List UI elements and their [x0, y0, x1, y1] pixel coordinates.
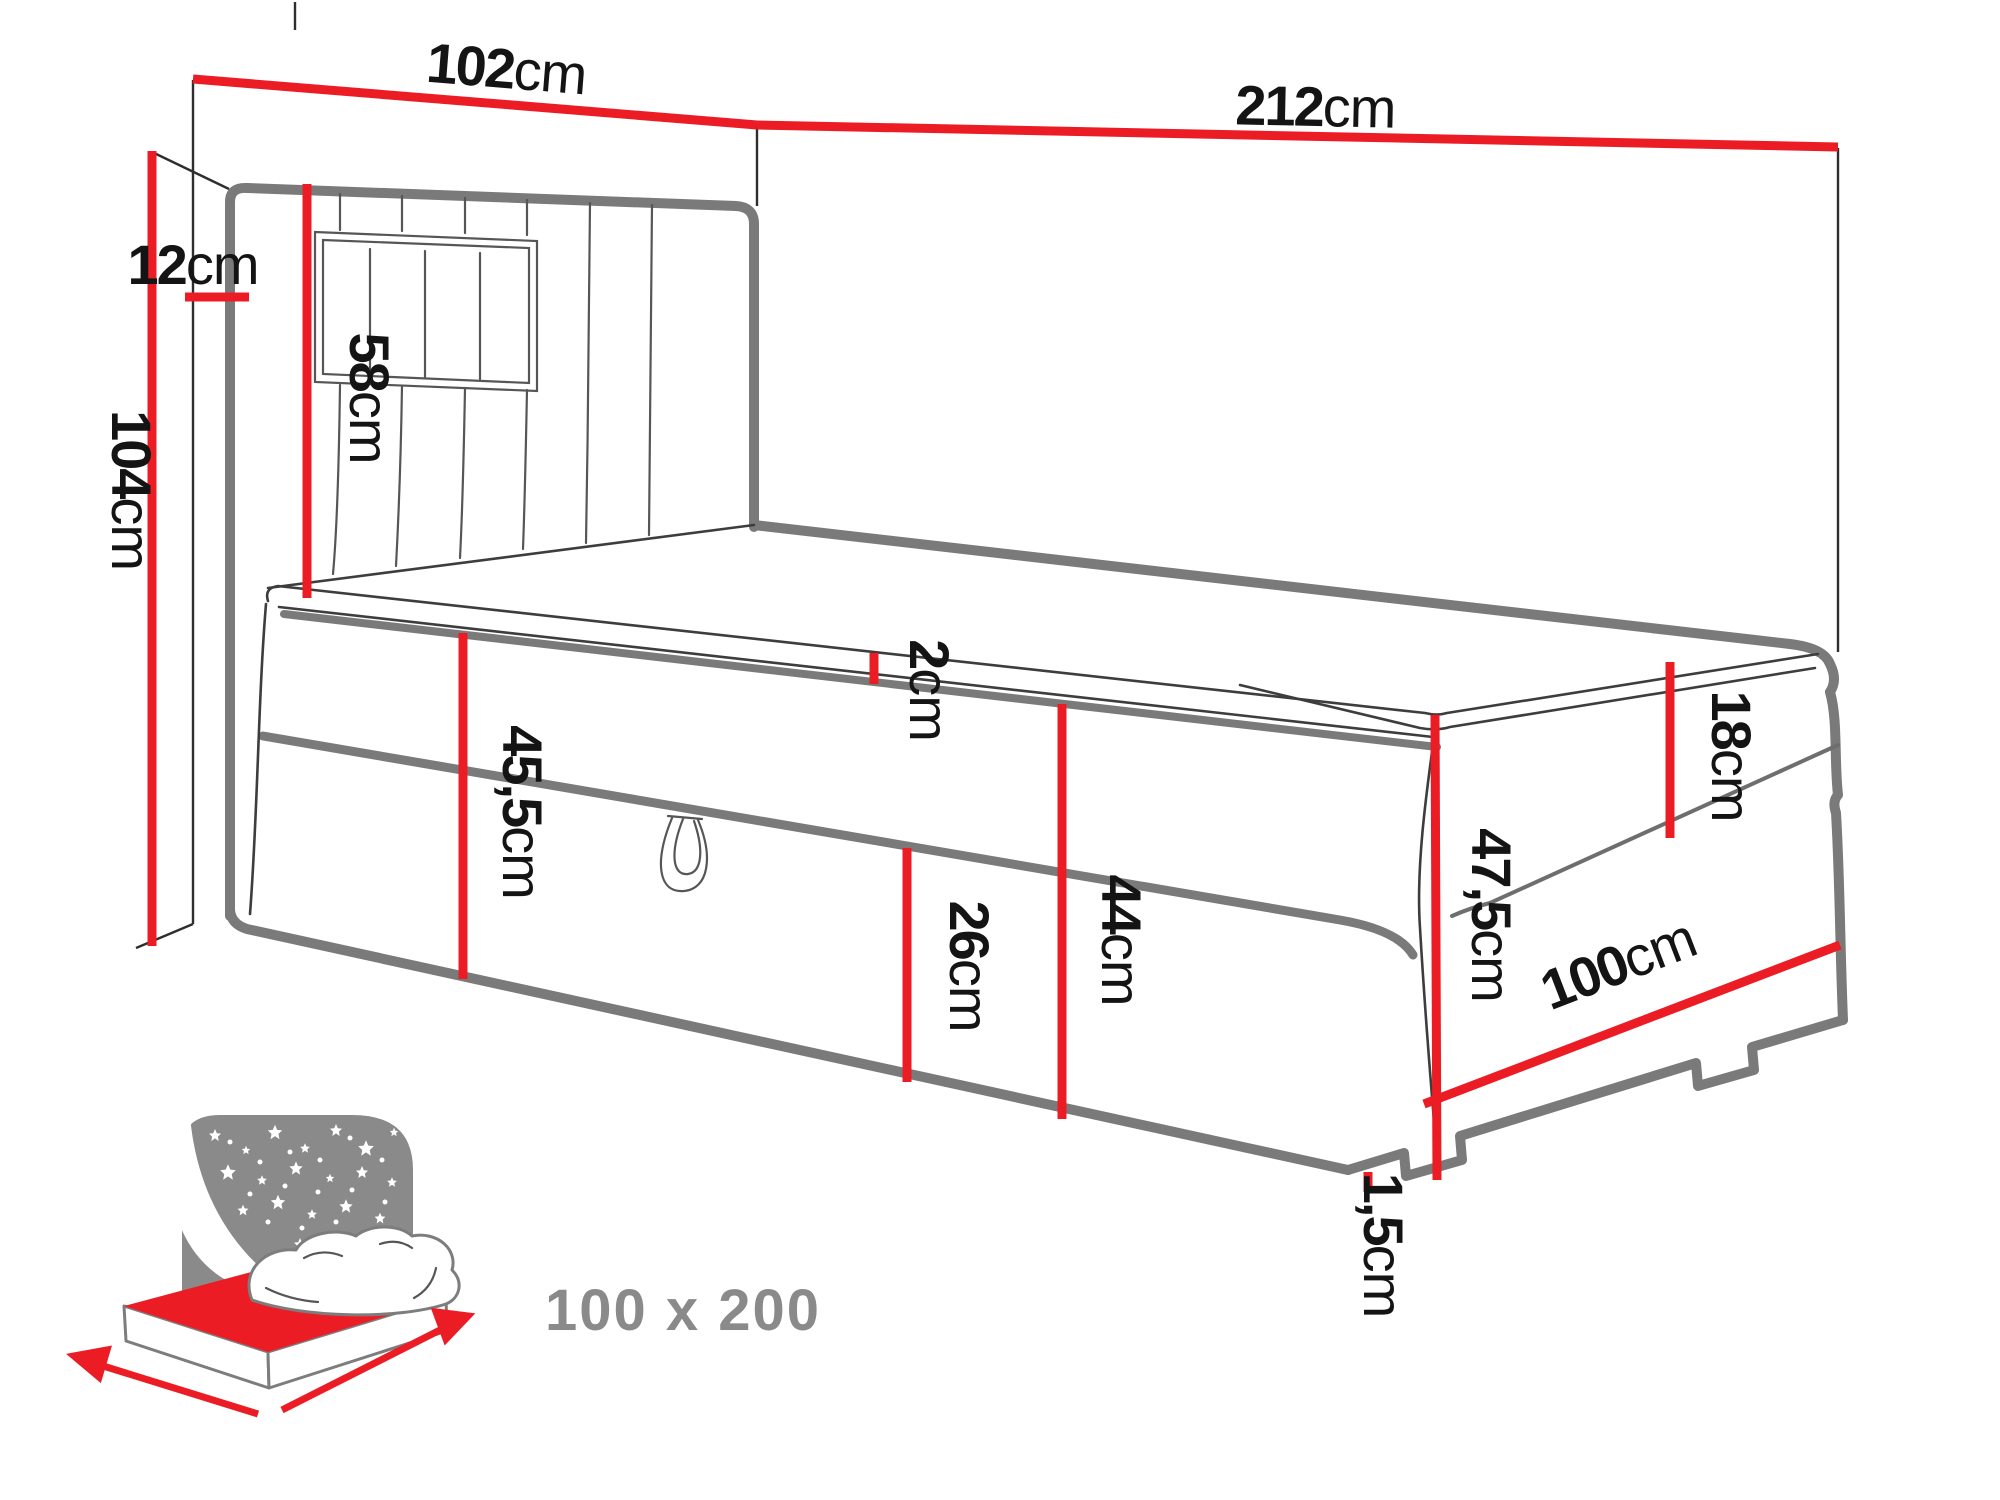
star-dot	[383, 1200, 388, 1205]
dimension-label-drawer-height: 26cm	[938, 901, 1001, 1032]
topper-bottom-line	[279, 607, 1433, 737]
headboard-tuft-seam	[586, 203, 590, 543]
headboard-tuft-seam	[649, 205, 652, 535]
star-dot	[348, 1136, 353, 1141]
wall-floor-line	[136, 924, 193, 948]
drawer-handle	[661, 816, 707, 891]
arrow-head-right-icon	[436, 1312, 468, 1339]
bed-size-icon	[74, 1115, 468, 1414]
dimension-label-headboard-above-mattress: 58cm	[338, 333, 401, 464]
dimension-line-47-5cm	[1435, 715, 1437, 1180]
side-head-curve	[250, 604, 266, 914]
dimension-label-total-length: 212cm	[1235, 73, 1396, 139]
headboard-tuft-seam	[460, 198, 465, 558]
star-dot	[380, 1158, 385, 1163]
box-divider-edge	[263, 736, 1413, 955]
dimension-label-topper: 2cm	[898, 639, 961, 741]
dimension-label-headboard-depth: 12cm	[128, 233, 259, 296]
star-dot	[288, 1150, 293, 1155]
bed-dimension-diagram: 102cm 212cm 12cm 104cm 58cm 2cm 45,5cm 2…	[0, 0, 2000, 1500]
star-dot	[283, 1184, 288, 1189]
star-dot	[316, 1190, 321, 1195]
extension-line-104-top	[152, 152, 229, 189]
star-dot	[318, 1158, 323, 1163]
dimension-label-foot-base-height: 44cm	[1090, 875, 1153, 1006]
under-mattress-edge	[284, 614, 1437, 747]
dimension-label-mattress-thickness: 18cm	[1700, 691, 1763, 822]
star-dot	[300, 1226, 305, 1231]
arrow-head-left-icon	[74, 1350, 107, 1377]
star-dot	[266, 1220, 271, 1225]
dimension-label-leg-height: 1,5cm	[1352, 1173, 1415, 1318]
star-dot	[228, 1140, 233, 1145]
headboard-tuft-seam	[523, 200, 527, 549]
foot-bottom-edge-with-legs	[1348, 1020, 1843, 1176]
mattress-top-contour	[267, 586, 1818, 715]
star-dot	[258, 1160, 263, 1165]
star-dot	[334, 1220, 339, 1225]
bed-detail-lines	[250, 194, 1838, 1168]
dimension-label-side-base-height: 45,5cm	[491, 725, 554, 899]
icon-size-caption: 100 x 200	[545, 1278, 821, 1343]
dimension-label-headboard-height: 104cm	[100, 410, 163, 570]
star-dot	[350, 1188, 355, 1193]
star-dot	[248, 1192, 253, 1197]
dimension-label-foot-total-height: 47,5cm	[1460, 828, 1523, 1002]
mattress-headboard-junction-line	[268, 525, 754, 588]
dimension-label-headboard-width: 102cm	[424, 31, 589, 107]
bed-right-far-edge	[1830, 692, 1843, 1020]
bed-outline-drawing	[230, 188, 1843, 1176]
